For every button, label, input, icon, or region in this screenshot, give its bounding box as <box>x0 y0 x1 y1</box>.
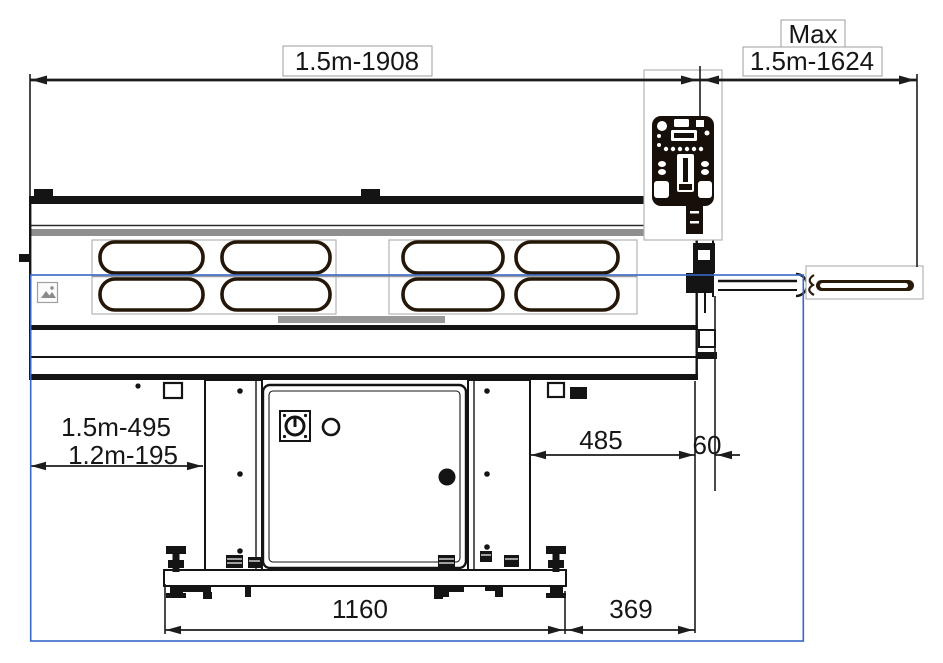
dimension-label-max: Max <box>788 19 837 49</box>
base-plate <box>164 570 566 586</box>
panel-led <box>657 134 661 138</box>
panel-led <box>705 131 710 136</box>
technical-drawing-page: 1.5m-1908 Max 1.5m-1624 1.5m-495 1.2m-19… <box>0 0 943 663</box>
control-panel <box>644 70 722 240</box>
table-clamp-left <box>34 189 53 197</box>
pedestal <box>164 380 566 599</box>
panel-pod <box>658 161 666 167</box>
dimension-label-369: 369 <box>609 594 652 624</box>
screw-dot <box>237 471 243 477</box>
panel-side-button-right <box>698 181 712 198</box>
body-bottom-edge <box>30 374 698 380</box>
screw-dot <box>484 471 490 477</box>
panel-knob <box>657 121 667 131</box>
vent-slot <box>222 279 330 310</box>
panel-key <box>671 147 675 151</box>
screw-dot <box>484 388 490 394</box>
mount-bracket-left <box>164 383 182 398</box>
body-band-line-2 <box>30 356 698 358</box>
panel-pod <box>701 169 709 175</box>
pedestal-left-column <box>205 380 262 571</box>
gray-band <box>30 229 698 236</box>
panel-key <box>692 147 696 151</box>
vent-slot <box>100 242 203 273</box>
dimension-label-485: 485 <box>579 425 622 455</box>
vent-slot <box>222 242 330 273</box>
screw-dot <box>237 388 243 394</box>
dimension-label-1160: 1160 <box>332 594 388 624</box>
panel-button-top <box>674 119 689 127</box>
arm-attachment-block <box>686 273 714 293</box>
pedestal-right-column <box>468 380 530 571</box>
dimension-label-top-right-span: 1.5m-1624 <box>750 46 874 76</box>
vent-slot <box>403 242 503 273</box>
table-clamp-middle <box>361 189 380 197</box>
body-band-line-1 <box>30 325 698 330</box>
dimension-label-top-span: 1.5m-1908 <box>295 46 419 76</box>
screw-dot <box>484 544 490 550</box>
vent-slot <box>516 279 618 310</box>
table-top-bar <box>30 196 698 204</box>
lower-hinge-bar <box>696 352 717 359</box>
dimension-label-left-offset-12m: 1.2m-195 <box>68 440 178 470</box>
indicator-ring <box>323 419 339 435</box>
screw-dot <box>135 383 140 388</box>
panel-display-text-bar <box>674 133 694 138</box>
handle-rod-core <box>820 283 908 288</box>
mount-bracket-right <box>548 383 564 397</box>
vent-slot <box>403 279 503 310</box>
dimension-label-left-offset-15m: 1.5m-495 <box>61 412 171 442</box>
panel-side-button-left <box>654 181 669 198</box>
panel-led <box>657 143 661 147</box>
panel-pod <box>658 169 666 175</box>
image-placeholder-icon <box>38 283 58 303</box>
arm-lower-line <box>704 293 706 313</box>
panel-pod <box>701 161 709 167</box>
panel-connector <box>686 206 703 234</box>
vent-slot <box>516 242 618 273</box>
dimension-label-60: 60 <box>693 430 722 460</box>
cabinet-knob-dot <box>439 469 456 486</box>
left-side-tab <box>19 254 30 262</box>
lower-hinge-block <box>699 330 715 347</box>
panel-key <box>685 147 689 151</box>
joystick-stick <box>683 158 688 182</box>
recessed-handle-bar <box>278 316 445 323</box>
rod-hook <box>796 274 807 296</box>
joystick-base <box>679 184 692 190</box>
panel-key <box>664 147 668 151</box>
power-switch <box>280 411 310 441</box>
vent-slots <box>92 240 637 314</box>
mount-block-right <box>570 387 587 399</box>
screw-dot <box>237 548 243 554</box>
panel-button-top-2 <box>696 120 704 127</box>
machine-drawing <box>19 70 923 599</box>
carriage-block-slot <box>698 250 710 260</box>
panel-key <box>678 147 682 151</box>
panel-key <box>699 147 703 151</box>
handle-assembly <box>806 266 923 299</box>
vent-slot <box>100 279 203 310</box>
